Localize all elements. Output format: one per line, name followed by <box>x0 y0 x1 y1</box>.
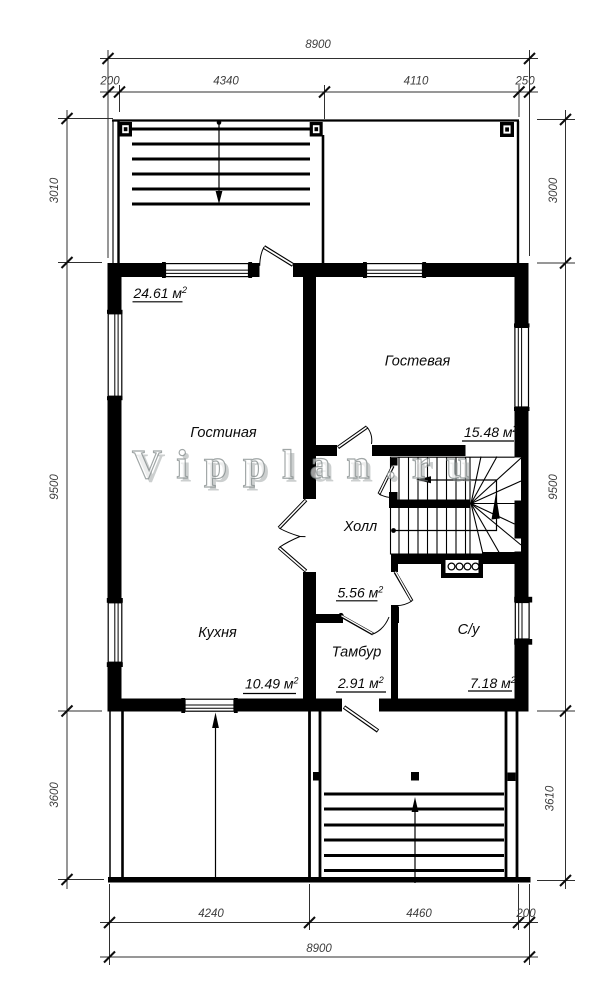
svg-text:2.91 м2: 2.91 м2 <box>337 675 384 691</box>
svg-text:250: 250 <box>514 76 535 88</box>
svg-text:Гостиная: Гостиная <box>190 425 257 441</box>
svg-text:8900: 8900 <box>306 943 332 955</box>
svg-text:3600: 3600 <box>49 782 61 808</box>
svg-text:9500: 9500 <box>548 474 560 500</box>
svg-text:4460: 4460 <box>406 908 432 920</box>
svg-text:3010: 3010 <box>49 177 61 203</box>
svg-text:Холл: Холл <box>343 519 377 535</box>
svg-text:9500: 9500 <box>49 474 61 500</box>
svg-text:200: 200 <box>515 908 536 920</box>
svg-text:8900: 8900 <box>305 39 331 51</box>
svg-text:Vipplan.ru: Vipplan.ru <box>132 441 485 487</box>
svg-text:Гостевая: Гостевая <box>385 354 451 370</box>
svg-text:5.56 м2: 5.56 м2 <box>338 585 384 601</box>
svg-text:3000: 3000 <box>548 177 560 203</box>
svg-text:200: 200 <box>99 76 120 88</box>
svg-text:15.48 м2: 15.48 м2 <box>464 424 518 440</box>
svg-text:Кухня: Кухня <box>198 625 237 641</box>
svg-text:4110: 4110 <box>404 76 429 88</box>
svg-text:10.49 м2: 10.49 м2 <box>245 676 299 692</box>
svg-text:4340: 4340 <box>213 76 239 88</box>
svg-text:4240: 4240 <box>198 908 224 920</box>
svg-text:24.61 м2: 24.61 м2 <box>133 285 188 301</box>
svg-text:7.18 м2: 7.18 м2 <box>470 675 516 691</box>
svg-text:Тамбур: Тамбур <box>332 645 382 661</box>
svg-text:С/у: С/у <box>458 622 481 638</box>
svg-text:3610: 3610 <box>545 785 557 811</box>
